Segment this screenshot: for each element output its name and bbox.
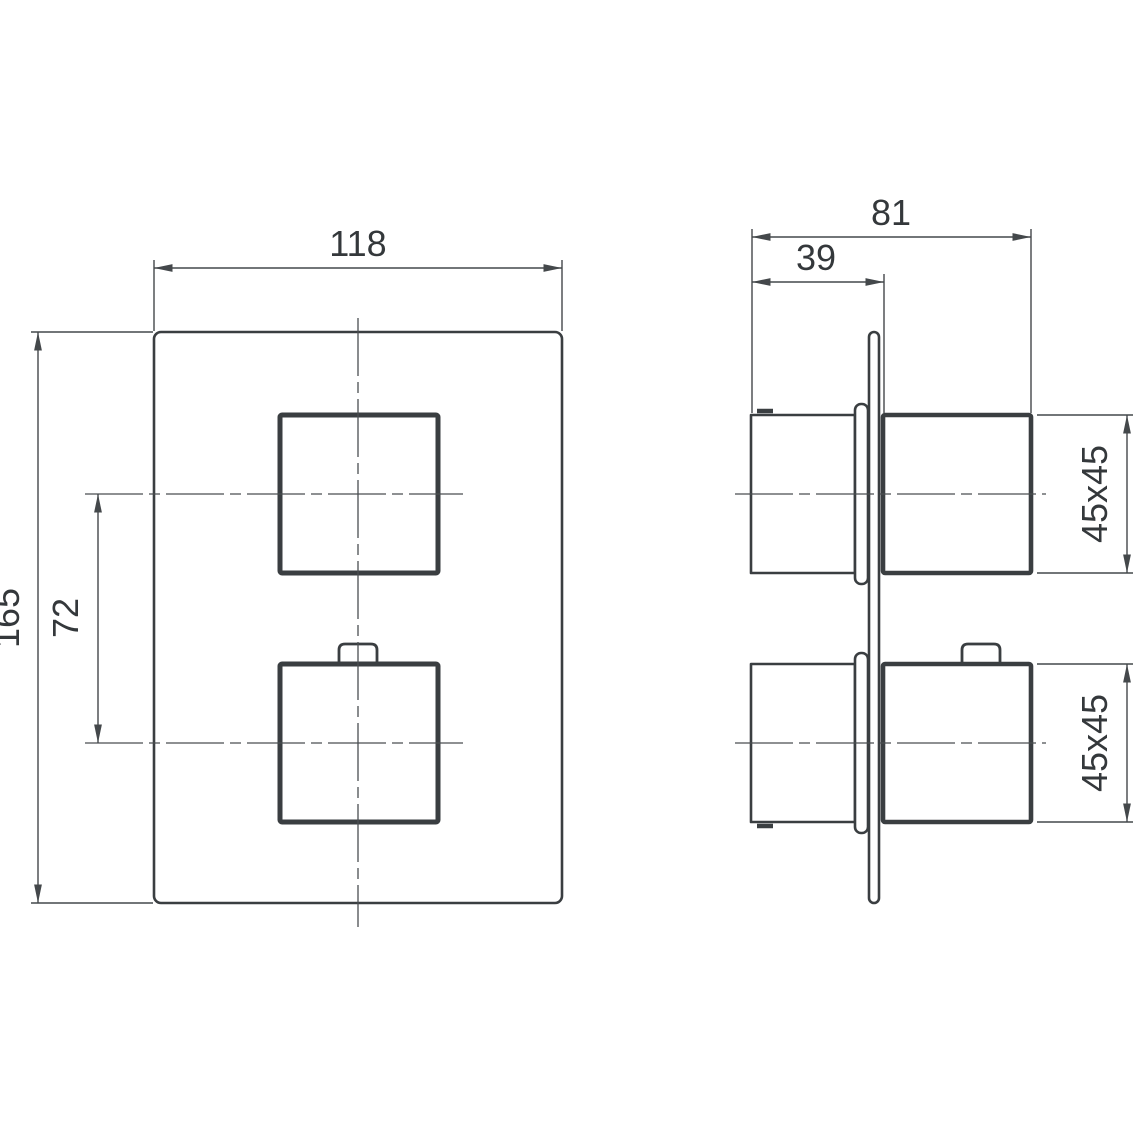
dimension-total-depth: 81	[752, 192, 1031, 413]
dimension-lower-handle-size: 45x45	[1037, 664, 1133, 822]
dimension-handle-spacing: 72	[45, 494, 98, 743]
dimension-label-wall-depth: 39	[796, 237, 836, 278]
side-lower-handle-tab	[962, 644, 1000, 664]
dimension-label-upper-handle-size: 45x45	[1074, 445, 1115, 543]
dimension-label-width: 118	[329, 223, 386, 264]
dimension-label-spacing: 72	[45, 598, 86, 638]
dimension-label-height: 165	[0, 588, 27, 648]
dimension-label-total-depth: 81	[871, 192, 911, 233]
dimension-upper-handle-size: 45x45	[1037, 415, 1133, 573]
dimension-wall-depth: 39	[752, 237, 884, 413]
side-wall-plate	[869, 332, 879, 903]
dimension-front-width: 118	[154, 223, 562, 331]
dimensional-drawing-canvas: 118 165 72	[0, 0, 1136, 1136]
dimension-label-lower-handle-size: 45x45	[1074, 694, 1115, 792]
technical-drawing-page: 118 165 72	[0, 0, 1136, 1136]
side-view: 81 39 45x45 45x45	[735, 192, 1133, 903]
front-view: 118 165 72	[0, 223, 562, 927]
